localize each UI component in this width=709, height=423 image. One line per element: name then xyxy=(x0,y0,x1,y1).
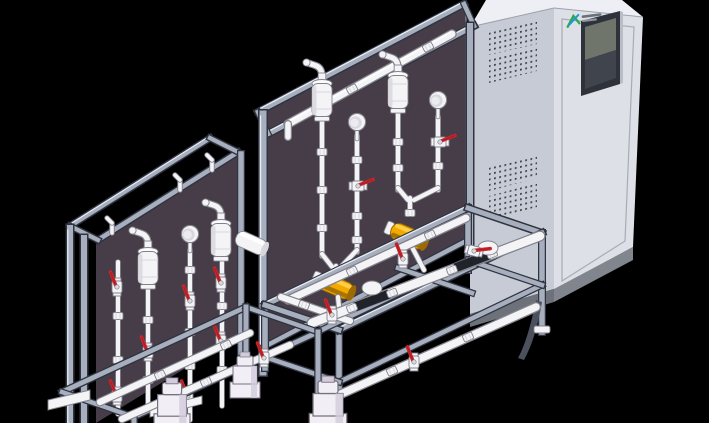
pipe-union xyxy=(185,267,195,274)
pipe-union xyxy=(317,187,327,194)
pipe-union xyxy=(352,213,362,220)
pipe-union xyxy=(393,139,403,146)
pipe-union xyxy=(352,237,362,244)
pipe-union xyxy=(433,163,443,170)
foot-pad xyxy=(534,326,550,333)
pipe-union xyxy=(113,313,123,320)
pump-head xyxy=(362,281,382,295)
render-viewport: 3D CAD render: two chemical dosing skid … xyxy=(0,0,709,423)
pipe-union xyxy=(317,149,327,156)
pipe-union xyxy=(405,210,415,217)
hmi-screen xyxy=(581,11,623,96)
pipe-union xyxy=(317,225,327,232)
pipe-union xyxy=(217,303,227,310)
pipe-union xyxy=(393,165,403,172)
pipe-union xyxy=(352,157,362,164)
pipe-union xyxy=(143,317,153,324)
cad-render: 3D CAD render: two chemical dosing skid … xyxy=(0,0,709,423)
